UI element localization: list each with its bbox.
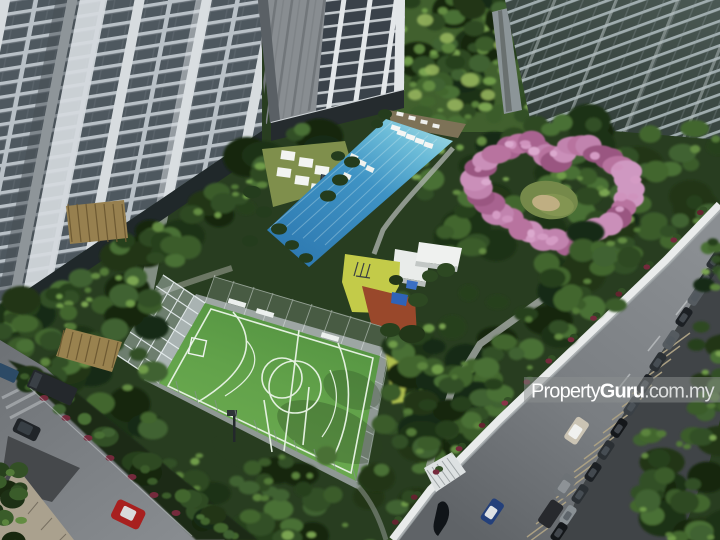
svg-text:PropertyGuru.com.my: PropertyGuru.com.my (531, 381, 715, 403)
